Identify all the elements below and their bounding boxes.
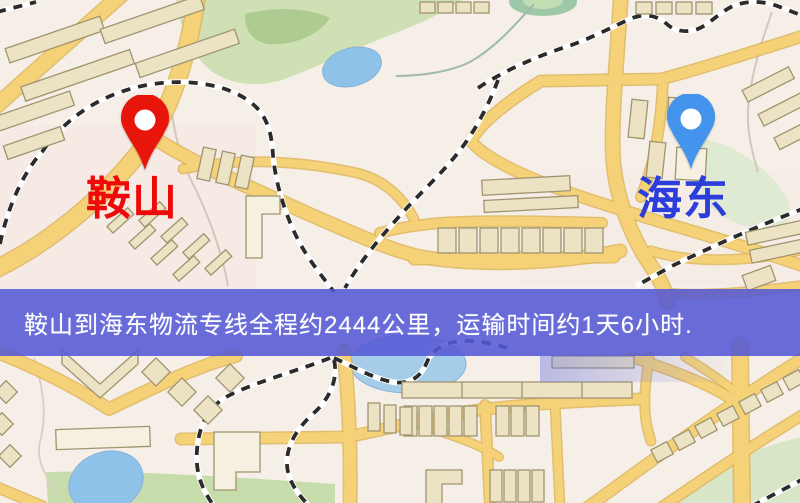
destination-label: 海东 [637, 177, 729, 222]
destination-pin-body [667, 94, 715, 169]
origin-pin-icon[interactable] [117, 95, 173, 171]
destination-pin-icon[interactable] [663, 94, 719, 170]
map-background [0, 0, 800, 503]
origin-pin-body [121, 95, 169, 170]
origin-pin-hole [135, 110, 156, 131]
route-map: 鞍山到海东物流专线全程约2444公里，运输时间约1天6小时. 鞍山 海东 [0, 0, 800, 503]
route-info-text: 鞍山到海东物流专线全程约2444公里，运输时间约1天6小时. [0, 305, 693, 340]
origin-label: 鞍山 [86, 177, 178, 222]
destination-pin-hole [681, 109, 702, 130]
route-info-banner: 鞍山到海东物流专线全程约2444公里，运输时间约1天6小时. [0, 289, 800, 356]
